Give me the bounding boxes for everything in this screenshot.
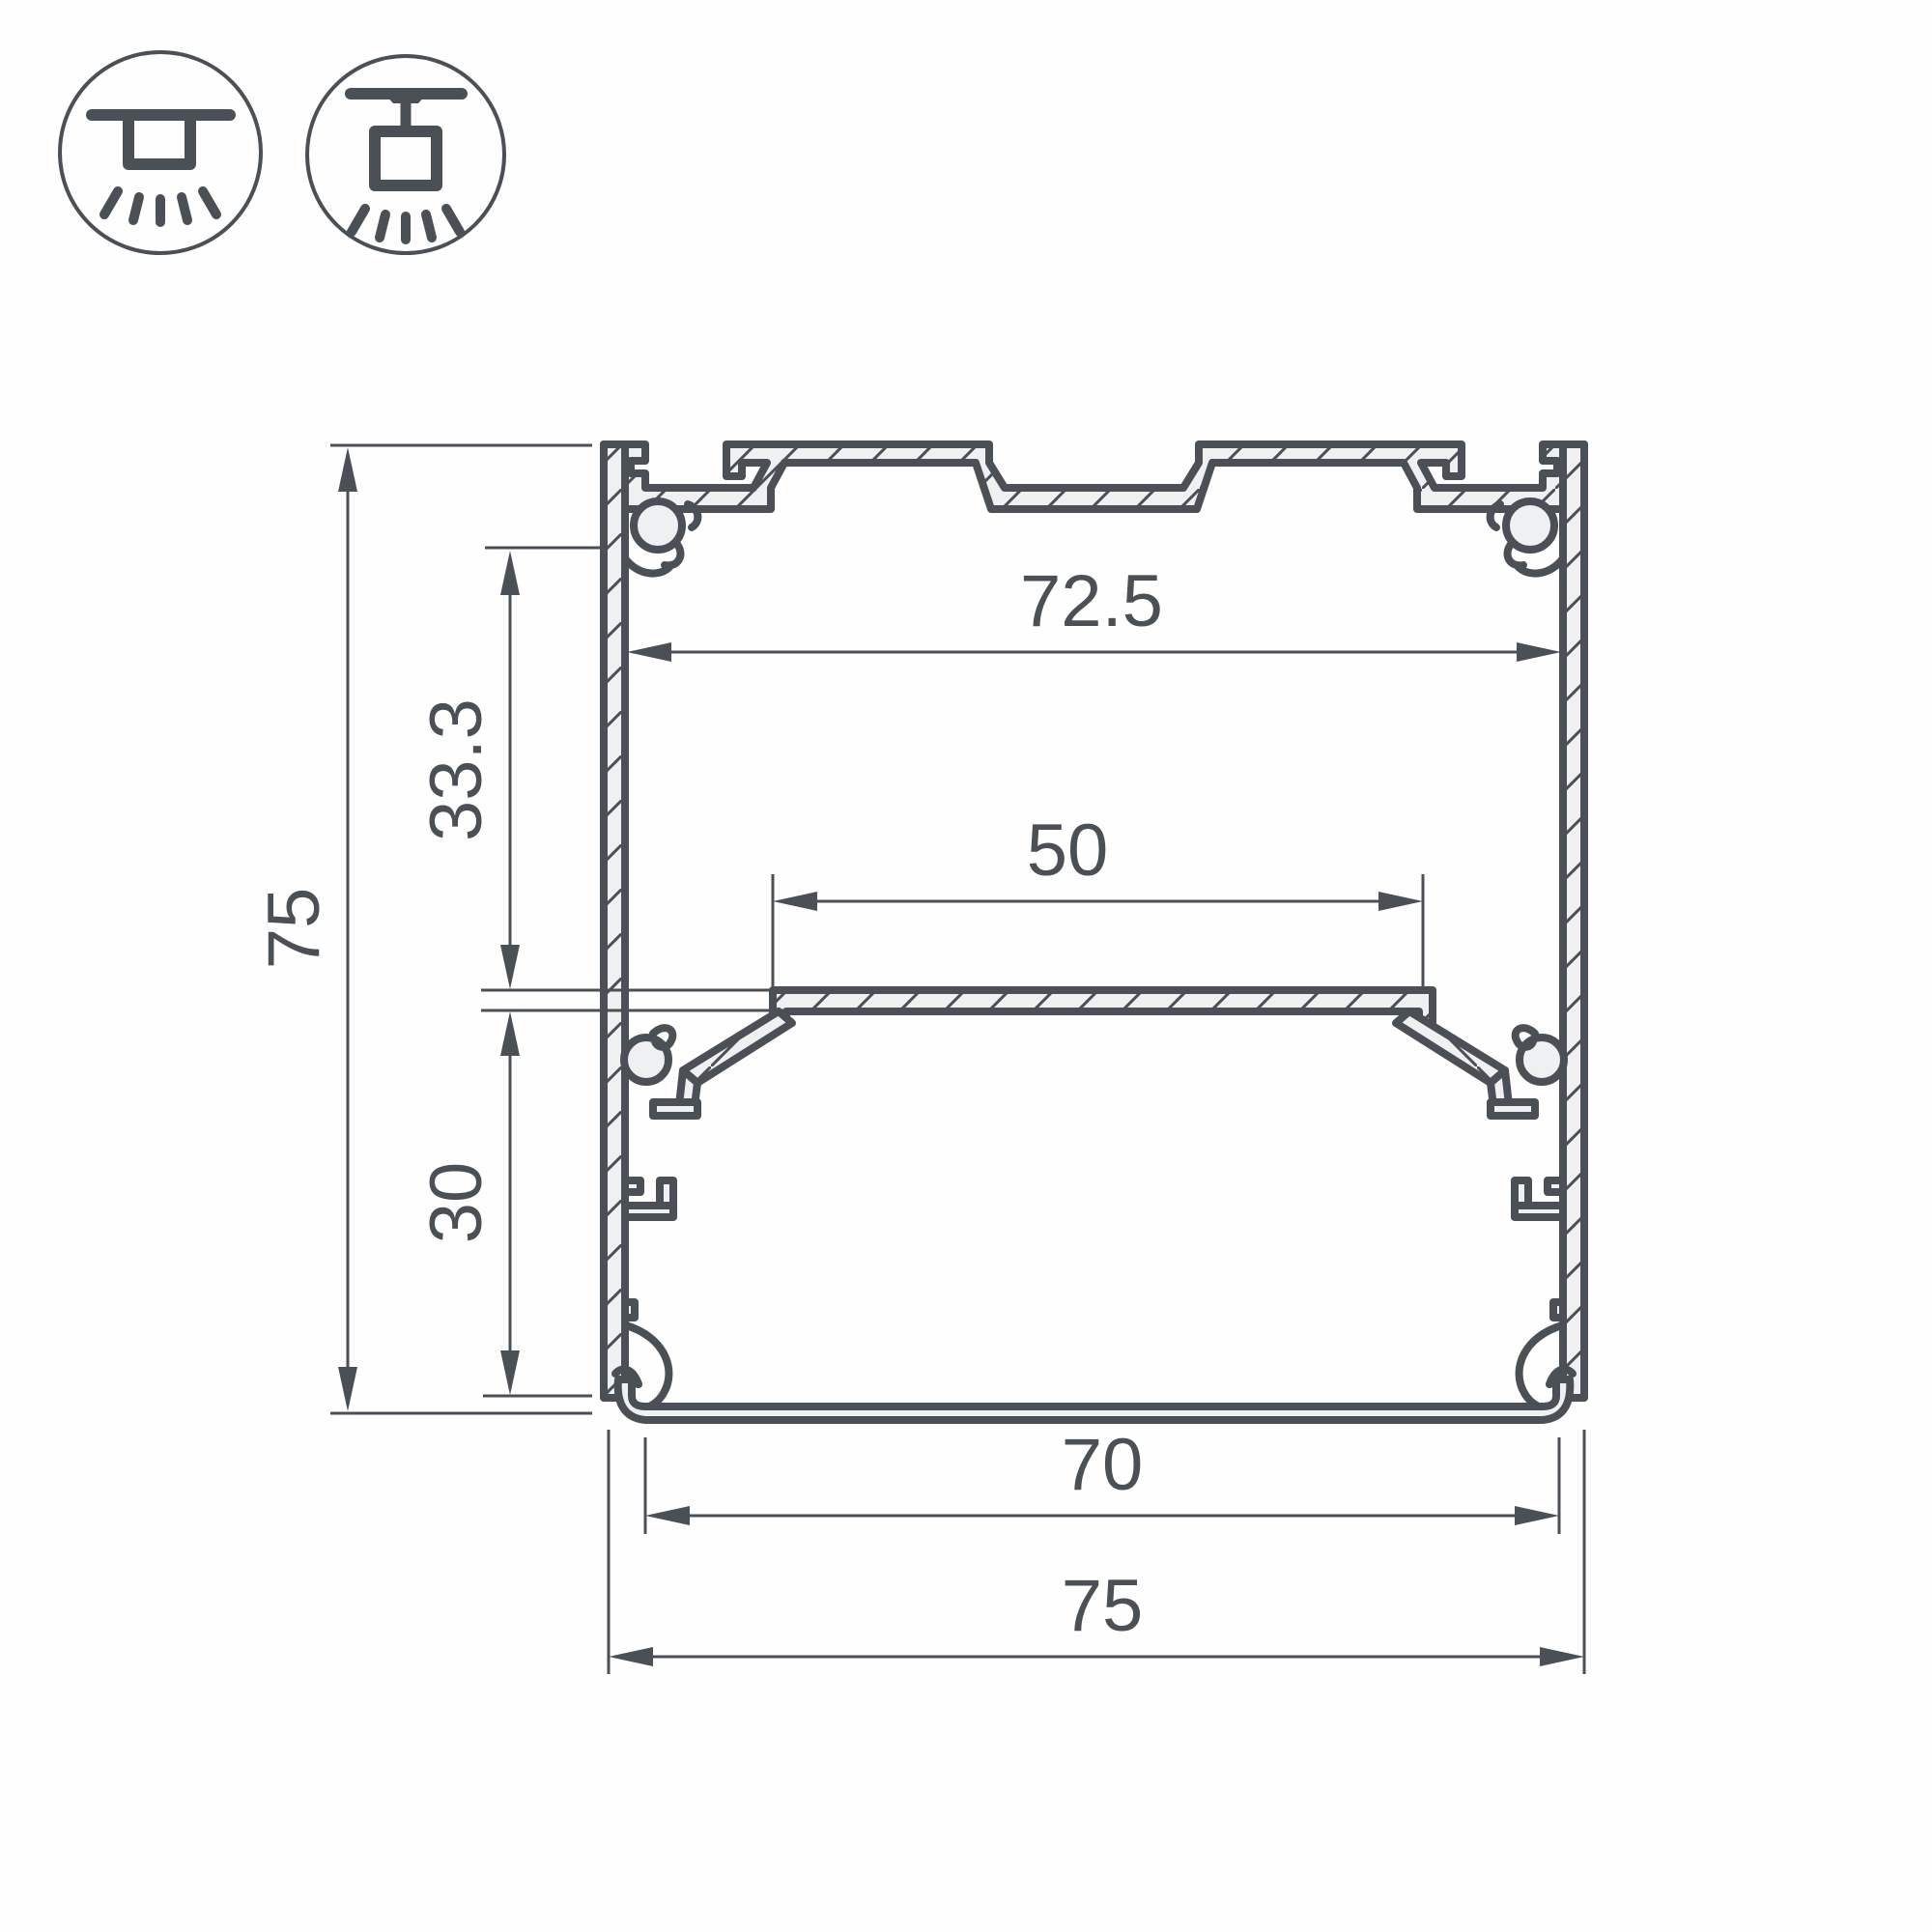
arrowhead-right — [1515, 1506, 1559, 1525]
boss-finger — [688, 504, 697, 527]
dim-label-overall-width: 75 — [1062, 1565, 1144, 1647]
arrowhead-left — [645, 1506, 690, 1525]
arrowhead-right — [1378, 892, 1423, 911]
arrowhead-left — [773, 892, 817, 911]
dim-label-shelf-width: 50 — [1027, 810, 1109, 892]
profile-drawing: 75 33.3 30 72.5 50 — [0, 0, 1932, 1932]
dim-shelf-width: 50 — [773, 810, 1423, 990]
right-wall — [1563, 444, 1584, 1398]
dim-bottom-width: 70 — [645, 1424, 1559, 1534]
shelf-support-strut — [683, 1011, 792, 1083]
support-foot — [653, 1102, 697, 1116]
arrowhead-right — [1517, 642, 1561, 662]
fixture-box — [375, 131, 437, 185]
light-rays — [104, 191, 216, 222]
mount-icons — [60, 52, 504, 253]
bottom-cover-plate — [618, 1379, 1571, 1420]
dim-label-inner-width: 72.5 — [1020, 560, 1163, 642]
led-shelf-plate — [773, 990, 1433, 1023]
arrowhead-down — [500, 945, 520, 989]
dim-label-upper-depth: 33.3 — [415, 698, 497, 841]
hook-base — [625, 1206, 673, 1217]
technical-drawing-page: 75 33.3 30 72.5 50 — [0, 0, 1932, 1932]
dim-inner-width: 72.5 — [627, 560, 1561, 662]
wall-step — [625, 1302, 635, 1318]
top-plate-assembly — [604, 444, 1584, 509]
arrowhead-left — [609, 1647, 653, 1666]
arrowhead-down — [500, 1350, 520, 1395]
dim-label-overall-height: 75 — [253, 888, 335, 970]
arrowhead-up — [338, 447, 357, 492]
left-side-features — [615, 501, 792, 1408]
hook-nub — [625, 1180, 640, 1192]
light-rays — [352, 209, 460, 240]
arrowhead-down — [338, 1367, 357, 1411]
fixture-box — [128, 115, 190, 164]
left-wall — [604, 444, 625, 1398]
pendant-mount-icon — [307, 56, 504, 253]
surface-mount-icon — [60, 52, 261, 253]
dim-overall-height: 75 — [253, 445, 592, 1413]
dim-label-lower-depth: 30 — [415, 1162, 497, 1244]
snap-hook — [625, 1180, 673, 1217]
dim-upper-depth: 33.3 — [415, 548, 779, 990]
dim-label-bottom-width: 70 — [1062, 1424, 1144, 1506]
arrowhead-left — [627, 642, 671, 662]
arrowhead-right — [1540, 1647, 1584, 1666]
arrowhead-up — [500, 1011, 520, 1056]
arrowhead-up — [500, 551, 520, 595]
